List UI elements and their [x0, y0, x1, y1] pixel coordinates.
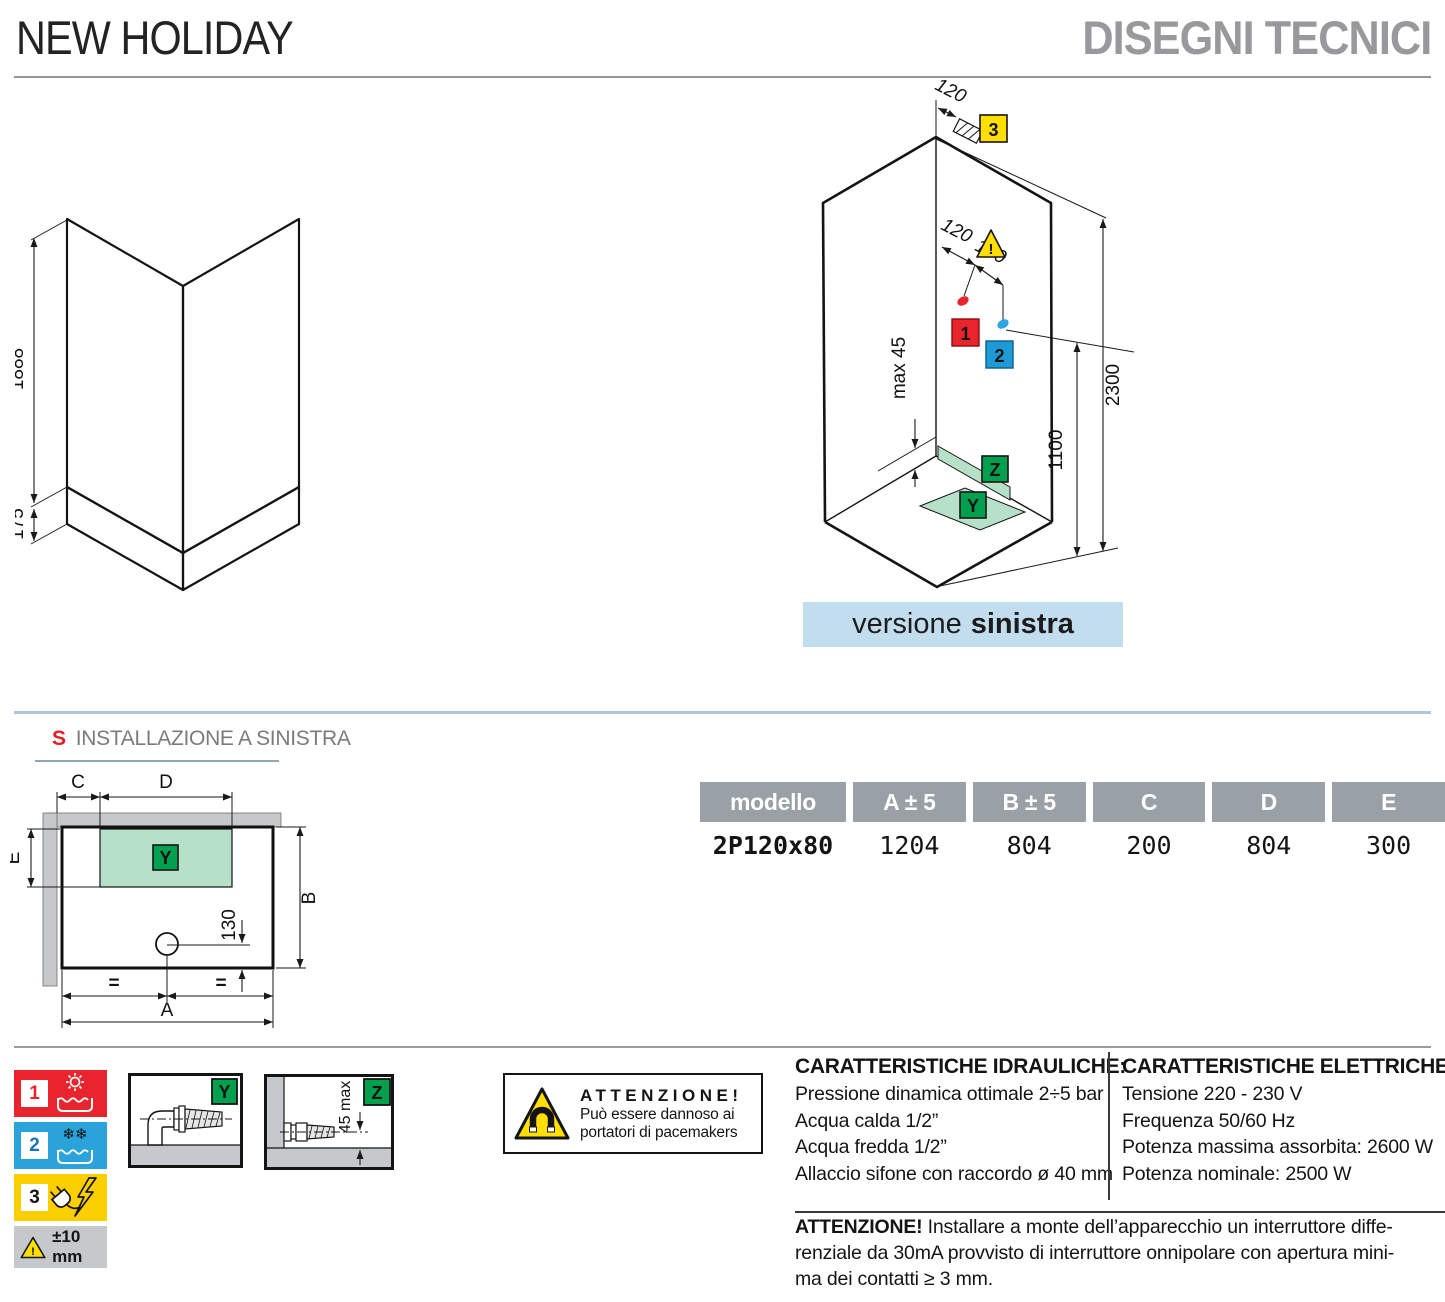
header-rule	[14, 76, 1431, 78]
legend-hot-water: 1	[14, 1070, 107, 1117]
hydraulics-block: CARATTERISTICHE IDRAULICHE: Pressione di…	[795, 1055, 1103, 1187]
lightning-icon	[75, 1178, 96, 1216]
hydraulics-line: Acqua fredda 1/2”	[795, 1134, 1103, 1161]
dim-1888: 1888	[15, 348, 28, 390]
hydraulics-line: Pressione dinamica ottimale 2÷5 bar	[795, 1081, 1103, 1108]
svg-text:Y: Y	[159, 848, 171, 868]
magnet-warning-icon	[513, 1086, 571, 1142]
cell-a: 1204	[853, 829, 966, 863]
datasheet-page: NEW HOLIDAY DISEGNI TECNICI 1888 175	[0, 0, 1445, 1302]
tolerance-value: ±10 mm	[52, 1227, 107, 1267]
cabin-walls	[823, 137, 1052, 587]
footer-warning-line: ma dei contatti ≥ 3 mm.	[795, 1268, 993, 1290]
dim-d: D	[159, 772, 173, 793]
sun-icon	[66, 1073, 84, 1091]
electric-icon	[48, 1175, 102, 1221]
dim-b: B	[299, 892, 320, 905]
legend-tolerance: ! ±10 mm	[14, 1226, 107, 1268]
col-d: D	[1212, 782, 1325, 822]
drain-circle	[156, 933, 178, 955]
page-subtitle: DISEGNI TECNICI	[1082, 10, 1431, 65]
footer-separator	[14, 1046, 1431, 1048]
dim-2300: 2300	[1103, 364, 1124, 406]
water-icon	[58, 1150, 92, 1163]
svg-text:Y: Y	[967, 496, 979, 516]
hydraulics-line: Allaccio sifone con raccordo ø 40 mm	[795, 1161, 1103, 1188]
footer-warning-rule	[795, 1211, 1445, 1213]
cold-water-icon: ❄❄	[48, 1123, 102, 1169]
dimension-tray-height: 175	[15, 508, 67, 544]
glass-panels-diagram: 1888 175	[15, 200, 335, 610]
footer-warning: ATTENZIONE! Installare a monte dell’appa…	[795, 1214, 1445, 1292]
table-row: 2P120x80 1204 804 200 804 300	[700, 829, 1445, 863]
footer-warning-line: Installare a monte dell’apparecchio un i…	[928, 1216, 1393, 1238]
legend-cold-water: 2 ❄❄	[14, 1122, 107, 1169]
version-caption-regular: versione	[852, 608, 962, 641]
marker-electric: 3	[980, 115, 1007, 142]
electrics-title: CARATTERISTICHE ELETTRICHE:	[1122, 1055, 1445, 1079]
section-separator	[14, 711, 1431, 714]
version-caption-bold: sinistra	[971, 608, 1074, 641]
dim-a: A	[161, 1000, 174, 1021]
dim-175: 175	[15, 508, 28, 540]
dim-c: C	[71, 772, 85, 793]
detail-z-box: 45 max Z	[264, 1074, 394, 1170]
electrics-block: CARATTERISTICHE ELETTRICHE: Tensione 220…	[1122, 1055, 1445, 1187]
cell-d: 804	[1212, 829, 1325, 863]
dim-1100: 1100	[1046, 430, 1067, 471]
dim-e: E	[10, 852, 24, 865]
plan-heading: SINSTALLAZIONE A SINISTRA	[52, 727, 351, 751]
column-divider	[1108, 1052, 1110, 1200]
hydraulics-line: Acqua calda 1/2”	[795, 1108, 1103, 1135]
dim-130: 130	[219, 909, 240, 941]
electrics-line: Potenza massima assorbita: 2600 W	[1122, 1134, 1445, 1161]
snowflake-icon: ❄❄	[62, 1126, 87, 1143]
col-b: B ± 5	[973, 782, 1086, 822]
svg-text:3: 3	[988, 120, 998, 140]
col-a: A ± 5	[853, 782, 966, 822]
plan-diagram: Y C D E B 130	[10, 770, 325, 1040]
legend-cold-number: 2	[21, 1132, 48, 1159]
legend-electric-number: 3	[21, 1184, 48, 1211]
warning-triangle-icon: !	[20, 1234, 46, 1261]
dim-45max: 45 max	[337, 1081, 354, 1133]
footer-warning-line: renziale da 30mA provvisto di interrutto…	[795, 1242, 1394, 1264]
detail-y-box: Y	[128, 1073, 243, 1168]
electric-connector-icon	[953, 119, 983, 143]
col-modello: modello	[700, 782, 846, 822]
equal-mark-left: =	[108, 973, 119, 994]
hot-water-icon	[48, 1071, 102, 1117]
plan-heading-underline	[35, 760, 279, 762]
water-icon	[58, 1098, 92, 1111]
plan-heading-text: INSTALLAZIONE A SINISTRA	[76, 727, 351, 750]
marker-siphon-z: Z	[982, 456, 1008, 482]
cell-b: 804	[973, 829, 1086, 863]
legend-electric: 3	[14, 1174, 107, 1221]
electrics-line: Frequenza 50/60 Hz	[1122, 1108, 1445, 1135]
svg-text:2: 2	[994, 346, 1004, 366]
electrics-line: Tensione 220 - 230 V	[1122, 1081, 1445, 1108]
table-header-row: modello A ± 5 B ± 5 C D E	[700, 782, 1445, 822]
floor	[131, 1145, 240, 1165]
svg-text:Z: Z	[372, 1083, 383, 1103]
col-e: E	[1332, 782, 1445, 822]
pacemaker-warning-box: ATTENZIONE! Può essere dannoso ai portat…	[503, 1073, 763, 1154]
plug-icon	[48, 1183, 80, 1218]
version-caption: versione sinistra	[803, 602, 1123, 647]
dimension-glass-height: 1888	[15, 220, 67, 507]
marker-drain-y: Y	[960, 492, 986, 518]
svg-text:1: 1	[960, 324, 970, 344]
cell-model: 2P120x80	[700, 829, 846, 863]
cell-e: 300	[1332, 829, 1445, 863]
dimensions-table: modello A ± 5 B ± 5 C D E 2P120x80 1204 …	[700, 782, 1445, 863]
cell-c: 200	[1093, 829, 1206, 863]
plan-marker-y: Y	[153, 845, 178, 870]
glass-panels	[67, 219, 299, 590]
svg-text:Z: Z	[990, 460, 1001, 480]
legend-hot-number: 1	[21, 1080, 48, 1107]
svg-text:Y: Y	[218, 1082, 230, 1102]
plan-dim-a: A	[62, 1000, 273, 1022]
col-c: C	[1093, 782, 1206, 822]
svg-text:!: !	[31, 1245, 35, 1257]
floor	[267, 1148, 391, 1167]
plan-heading-letter: S	[52, 727, 66, 750]
magnet-warning-line2: portatori di pacemakers	[580, 1124, 743, 1141]
svg-text:!: !	[989, 241, 994, 258]
footer-warning-title: ATTENZIONE!	[795, 1216, 922, 1238]
magnet-warning-title: ATTENZIONE!	[580, 1086, 743, 1106]
detail-y-label: Y	[212, 1079, 237, 1104]
dim-electric-120: 120	[932, 80, 970, 108]
detail-z-label: Z	[364, 1079, 390, 1105]
wall	[267, 1077, 284, 1148]
dim-max45: max 45	[889, 337, 910, 399]
page-title: NEW HOLIDAY	[16, 10, 293, 65]
plan-dim-b: B	[276, 827, 320, 968]
magnet-warning-line1: Può essere dannoso ai	[580, 1106, 743, 1123]
electrics-line: Potenza nominale: 2500 W	[1122, 1161, 1445, 1188]
hydraulics-title: CARATTERISTICHE IDRAULICHE:	[795, 1055, 1103, 1079]
equal-mark-right: =	[215, 973, 226, 994]
cabin-installation-diagram: 120 3 2300 1100	[778, 80, 1143, 600]
